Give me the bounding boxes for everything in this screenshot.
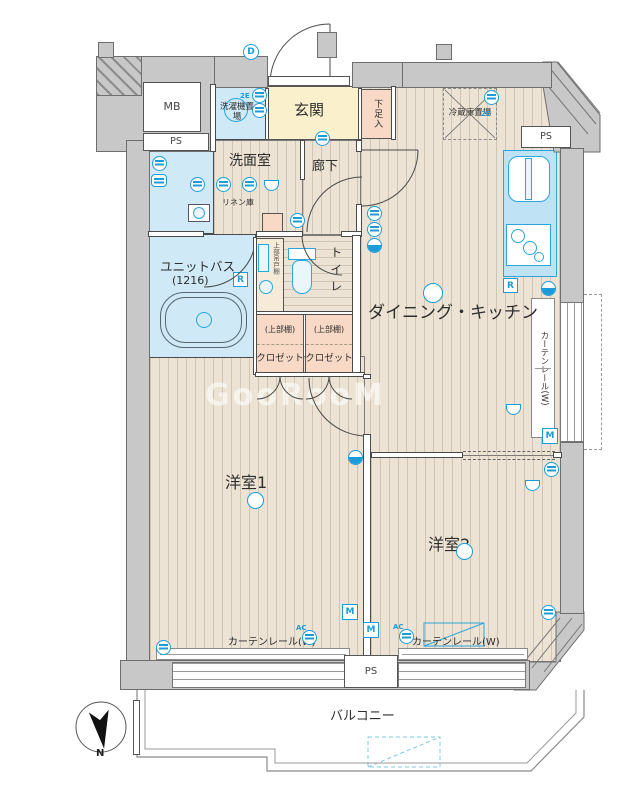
room1-outlet-ne-icon	[348, 450, 363, 465]
toilet-bowl	[292, 260, 312, 294]
wall-right-lower	[560, 442, 584, 614]
ps-box-right: PS	[521, 126, 571, 148]
wall-bath-top-left	[148, 231, 204, 237]
dk-tel-icon	[367, 238, 382, 253]
washroom-switch1-icon	[190, 177, 205, 192]
window-dk-east-outline	[584, 294, 602, 450]
kitchen-faucet-icon	[525, 158, 532, 200]
genkan-label: 玄関	[294, 102, 324, 119]
unit-bath-size: (1216)	[172, 275, 209, 288]
curtain-rail-room1	[156, 648, 350, 660]
wall-dk-room2-solid	[371, 452, 463, 458]
hallway-floor	[302, 140, 363, 235]
closet1-label: クロゼット	[256, 354, 304, 365]
wall-top-left-hatch	[96, 56, 142, 96]
washbasin-bowl-icon	[259, 280, 273, 294]
window-room2	[398, 662, 526, 688]
room1-label: 洋室1	[225, 474, 267, 492]
dk-ceiling-light-icon	[423, 283, 443, 303]
wall-left	[126, 140, 150, 662]
window-dk-east	[560, 302, 584, 442]
marker-entrance-door: D	[243, 44, 259, 60]
wall-above-shoe	[352, 62, 404, 88]
marker-2e-fridge: 2E	[481, 110, 491, 118]
room2-ac-outlet-icon	[399, 629, 414, 644]
toilet-tank	[288, 248, 316, 260]
closet-1: (上部棚) クロゼット	[256, 314, 304, 374]
wall-bump-3	[436, 44, 452, 60]
wall-top-mid	[214, 56, 268, 88]
balcony-label: バルコニー	[330, 710, 395, 725]
bath-drain-icon	[196, 312, 212, 328]
room1-ac-outlet-icon	[302, 630, 317, 645]
balcony-divider	[133, 700, 140, 755]
dk-switch1-icon	[367, 206, 382, 221]
washbasin-counter	[258, 244, 269, 272]
ps-bottom-label: PS	[365, 666, 377, 678]
ps-right-label: PS	[540, 132, 552, 143]
washroom-switch2-icon	[216, 177, 231, 192]
window-room1	[172, 662, 346, 688]
wall-bump-1	[98, 42, 114, 58]
closet-2: (上部棚) クロゼット	[305, 314, 353, 374]
curtain-rail-dk-label: カーテンレール(W)	[538, 331, 548, 406]
washroom-label: 洗面室	[229, 153, 271, 169]
washer-outlet-icon	[252, 88, 267, 103]
wall-dk-room2-dashed	[463, 451, 555, 460]
mb-box: MB	[143, 82, 201, 132]
washer-label: 洗濯機置場	[217, 96, 257, 130]
wall-mb-washroom	[210, 84, 216, 152]
vanity-switch-icon	[151, 174, 167, 187]
genkan-light-icon	[315, 131, 330, 146]
wall-block-east	[352, 235, 361, 375]
curtain-rail-room2-label: カーテンレール(W)	[412, 637, 500, 649]
room1-ceiling-light-icon	[247, 492, 264, 509]
wall-toilet-top	[256, 231, 303, 237]
room2-ceiling-light-icon	[456, 543, 473, 560]
dk-switch2-icon	[367, 222, 382, 237]
washroom-switch3-icon	[242, 177, 257, 192]
marker-2e-washer: 2E	[240, 92, 250, 100]
closet2-upper-shelf-label: (上部棚)	[314, 325, 344, 334]
compass-north-label: N	[96, 748, 104, 760]
marker-range-kitchen: R	[503, 278, 518, 293]
ps-box-left: PS	[143, 133, 209, 151]
closet1-upper-shelf-label: (上部棚)	[265, 325, 295, 334]
mb-label: MB	[163, 101, 180, 114]
linen-label: リネン庫	[222, 198, 254, 207]
ps-box-bottom: PS	[344, 655, 398, 688]
stove-burner1-icon	[511, 229, 525, 243]
hallway-label: 廊下	[312, 160, 338, 175]
room1-outlet-sw-icon	[156, 640, 171, 655]
stove-burner3-icon	[534, 252, 544, 262]
marker-meter-bottom1: M	[342, 604, 358, 620]
ps-left-label: PS	[170, 137, 182, 148]
dk-label: ダイニング・キッチン	[368, 304, 538, 324]
wall-hall-dk-upper	[356, 140, 362, 152]
curtain-rail-room2	[398, 648, 528, 660]
closet2-label: クロゼット	[305, 354, 353, 365]
genkan-step-line	[267, 139, 361, 140]
wall-washroom-hall-upper	[300, 140, 305, 180]
vanity-sink-bowl-icon	[193, 207, 205, 219]
marker-meter-bottom2: M	[363, 622, 379, 638]
shoe-box: 下足入	[361, 89, 393, 139]
wall-shoe-dk	[391, 86, 396, 140]
marker-meter-dk: M	[542, 428, 558, 444]
marker-range-bath: R	[233, 272, 248, 287]
wall-genkan-shoe	[358, 88, 362, 140]
kitchen-outlet-icon	[541, 281, 556, 296]
wall-bump-2	[317, 32, 337, 58]
fridge-outlet-icon	[484, 90, 499, 105]
wall-closet-front	[255, 372, 365, 377]
floor-plan: 下足入 洗濯機置場 ユニットバス (1216) R 上部吊戸棚 トイレ (上部棚…	[0, 0, 631, 800]
washer-outlet2-icon	[252, 103, 267, 118]
unit-bath-label: ユニットバス	[160, 260, 235, 274]
vanity-outlet-icon	[152, 156, 167, 171]
hallway-switch-icon	[290, 213, 305, 228]
watermark: GooRooM	[205, 378, 386, 413]
room2-outlet-se-icon	[541, 605, 556, 620]
shoe-box-label: 下足入	[372, 99, 382, 129]
toilet-label: トイレ	[328, 246, 342, 297]
wall-right-upper	[560, 148, 584, 304]
hanging-cabinet-label: 上部吊戸棚	[271, 242, 278, 275]
entrance-sill	[268, 76, 350, 86]
wall-dk-room2-end	[553, 452, 562, 458]
wall-closet-top	[256, 311, 353, 315]
dk-outlet-east-icon	[544, 462, 559, 477]
wall-room-divider-jamb	[363, 374, 371, 379]
wall-bath-strip	[253, 237, 257, 375]
wall-top-right	[402, 62, 552, 88]
